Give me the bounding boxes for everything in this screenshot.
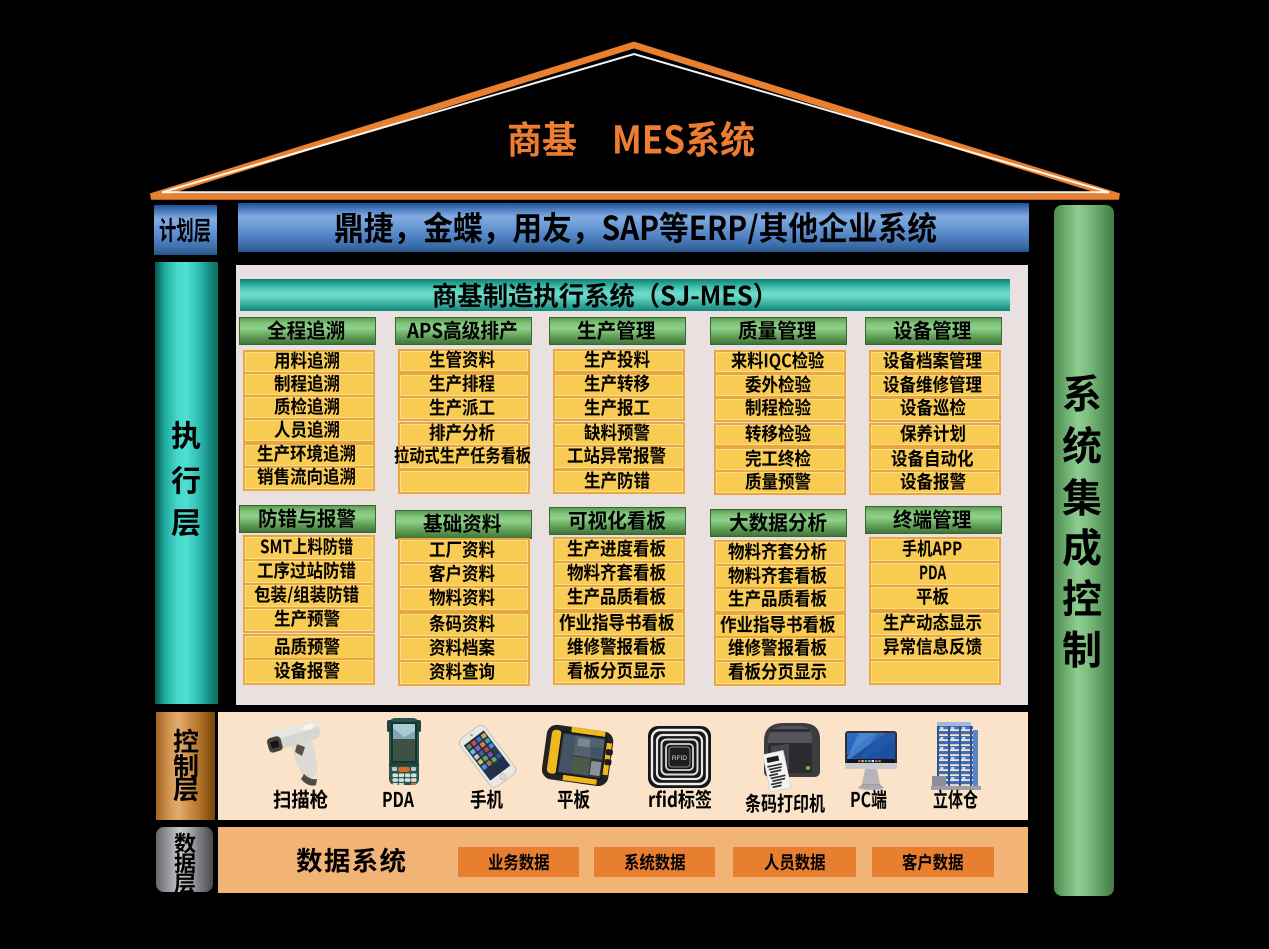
svg-text:RFID: RFID bbox=[672, 755, 687, 762]
